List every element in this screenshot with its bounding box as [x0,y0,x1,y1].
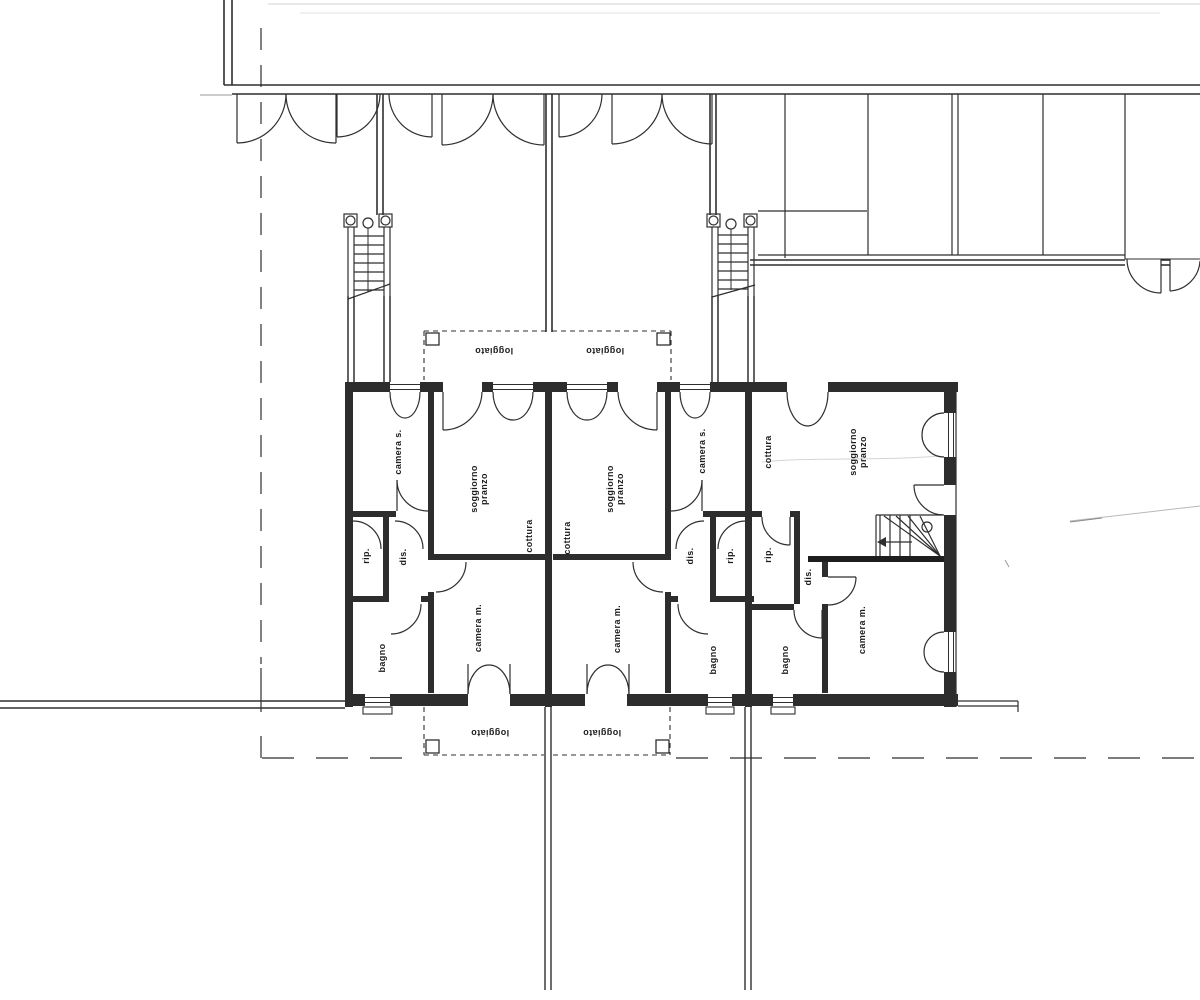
external-stair-left [344,214,392,382]
room-label-camera-m-right: camera m. [857,606,867,654]
room-label-cottura-right: cottura [763,435,773,468]
loggiato-label-top-left: loggiato [475,346,513,356]
room-label-rip-middle: rip. [725,548,735,564]
room-label-cottura-left: cottura [524,519,534,552]
soggiorno-line2: pranzo [479,473,489,505]
room-label-bagno-right: bagno [780,646,790,675]
room-label-camera-s-middle: camera s. [697,428,707,473]
loggiato-label-top-right: loggiato [586,346,624,356]
room-label-dis-right: dis. [803,568,813,585]
room-label-dis-left: dis. [398,548,408,565]
room-label-camera-m-middle: camera m. [612,605,622,653]
site-boundaries [0,28,1200,990]
room-label-rip-right: rip. [763,547,773,563]
room-label-cottura-middle: cottura [562,521,572,554]
soggiorno-line2: pranzo [858,436,868,468]
room-label-bagno-left: bagno [377,644,387,673]
soggiorno-line1: soggiorno [605,465,615,513]
room-label-soggiorno-right: soggiornopranzo [848,428,868,476]
loggiato-label-bottom-right: loggiato [583,728,621,738]
loggia-top [424,331,671,380]
floorplan-linework [0,0,1200,1000]
soggiorno-line1: soggiorno [469,465,479,513]
site-top-walls [200,0,1200,95]
loggia-bottom [424,707,670,755]
loggiato-label-bottom-left: loggiato [471,728,509,738]
room-label-camera-s-left: camera s. [393,429,403,474]
room-label-dis-middle: dis. [685,547,695,564]
room-label-bagno-middle: bagno [708,646,718,675]
soggiorno-line2: pranzo [615,473,625,505]
room-label-rip-left: rip. [361,548,371,564]
carport-band [750,94,1200,293]
scan-artifacts [268,4,1200,567]
site-top-doors [237,94,716,332]
internal-stair [876,515,942,556]
external-stair-right [707,214,757,382]
room-label-soggiorno-middle: soggiornopranzo [605,465,625,513]
floor-plan-page: camera s. soggiornopranzo cottura rip. d… [0,0,1200,1000]
soggiorno-line1: soggiorno [848,428,858,476]
room-label-soggiorno-left: soggiornopranzo [469,465,489,513]
room-label-camera-m-left: camera m. [473,604,483,652]
